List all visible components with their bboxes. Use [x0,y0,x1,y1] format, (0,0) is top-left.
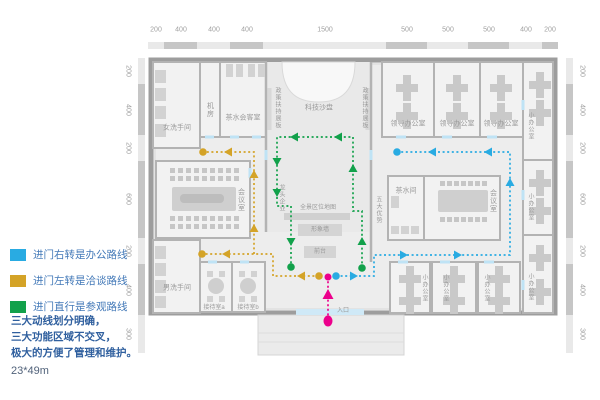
label-tea-meeting-room: 茶水会客室 [226,115,261,122]
dim-label-top-1: 400 [175,27,187,34]
dim-label-top-0: 200 [150,27,162,34]
dim-label-top-7: 500 [483,27,495,34]
note-line-3: 极大的方便了管理和维护。 [11,345,161,361]
negotiation-route-label: 进门左转是洽谈路线 [33,273,128,288]
legend-item-negotiation-route: 进门左转是洽谈路线 [10,273,150,288]
label-small-office-b3: 小办公室 [483,274,489,302]
legend-item-office-route: 进门右转是办公路线 [10,247,150,262]
label-entrance: 入口 [337,308,349,314]
label-reception-a: 接待室a [203,305,224,311]
label-tea-room: 茶水间 [396,188,417,195]
top-dimension-bar [148,42,558,49]
label-policy-board-left: 政策扶持展板 [274,87,280,129]
dim-label-right-0: 200 [579,65,586,77]
label-men-restroom: 男洗手间 [163,285,191,292]
dim-label-left-0: 200 [125,65,132,77]
label-leader-office-2: 领导办公室 [440,121,475,128]
dim-label-left-2: 200 [125,142,132,154]
visit-route-swatch [10,301,26,313]
area-map-wall [284,213,350,220]
label-leading-enterprise: 龙头企业 [278,184,284,212]
note-line-1: 三大动线划分明确， [11,313,161,329]
notes: 三大动线划分明确， 三大功能区域不交叉， 极大的方便了管理和维护。 23*49m [11,313,161,377]
dim-label-top-9: 200 [544,27,556,34]
label-small-office-b1: 小办公室 [421,274,427,302]
dim-label-top-8: 400 [520,27,532,34]
dim-label-top-4: 1500 [317,27,333,34]
building-size: 23*49m [11,365,161,377]
dim-label-right-4: 200 [579,245,586,257]
label-leader-office-3: 领导办公室 [484,121,519,128]
dim-label-left-1: 400 [125,104,132,116]
label-front-desk: 前台 [314,249,326,255]
dim-label-right-6: 300 [579,328,586,340]
label-small-office-rt: 小办公室 [527,112,533,140]
meeting-room-left-furniture [170,168,239,229]
negotiation-route-swatch [10,275,26,287]
legend-item-visit-route: 进门直行是参观路线 [10,299,150,314]
label-image-wall: 形象墙 [311,227,329,233]
dim-label-top-2: 400 [208,27,220,34]
label-leader-office-1: 领导办公室 [391,121,426,128]
label-meeting-room-left: 会议室 [238,188,245,212]
office-route-label: 进门右转是办公路线 [33,247,128,262]
dim-label-right-3: 600 [579,193,586,205]
visit-route-label: 进门直行是参观路线 [33,299,128,314]
dim-label-top-5: 500 [401,27,413,34]
dim-label-top-3: 400 [241,27,253,34]
label-policy-board-right: 政策扶持展板 [361,87,367,129]
office-route-swatch [10,249,26,261]
policy-board-left-shape [268,88,272,130]
label-small-office-rb: 小办公室 [527,273,533,301]
right-dimension-bar [566,58,573,353]
label-small-office-rm: 小办公室 [527,193,533,221]
dim-label-right-1: 400 [579,104,586,116]
label-tech-sand-table: 科技沙盘 [305,105,333,112]
dim-label-left-3: 600 [125,193,132,205]
floor-plan-infographic: 女洗手间 机房 茶水会客室 科技沙盘 政策扶持展板 政策扶持展板 领导办公室 领… [0,0,600,400]
label-reception-b: 接待室b [237,305,258,311]
label-women-restroom: 女洗手间 [163,125,191,132]
note-line-2: 三大功能区域不交叉， [11,329,161,345]
dim-label-top-6: 500 [442,27,454,34]
label-five-advantages: 五大优势 [375,196,381,224]
label-meeting-room-right: 会议室 [490,189,497,213]
dim-label-right-5: 400 [579,284,586,296]
label-machine-room: 机房 [207,102,214,118]
dim-label-right-2: 200 [579,142,586,154]
label-area-map: 全景区位地图 [300,205,336,211]
label-small-office-b2: 小办公室 [442,274,448,302]
